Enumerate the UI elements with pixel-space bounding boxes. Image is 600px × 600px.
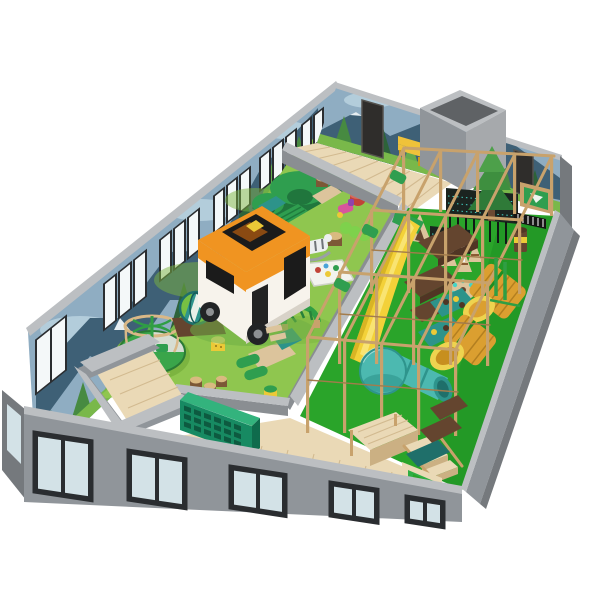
playground-render [0,0,600,600]
back-door [362,100,383,158]
render-canvas [0,0,600,600]
